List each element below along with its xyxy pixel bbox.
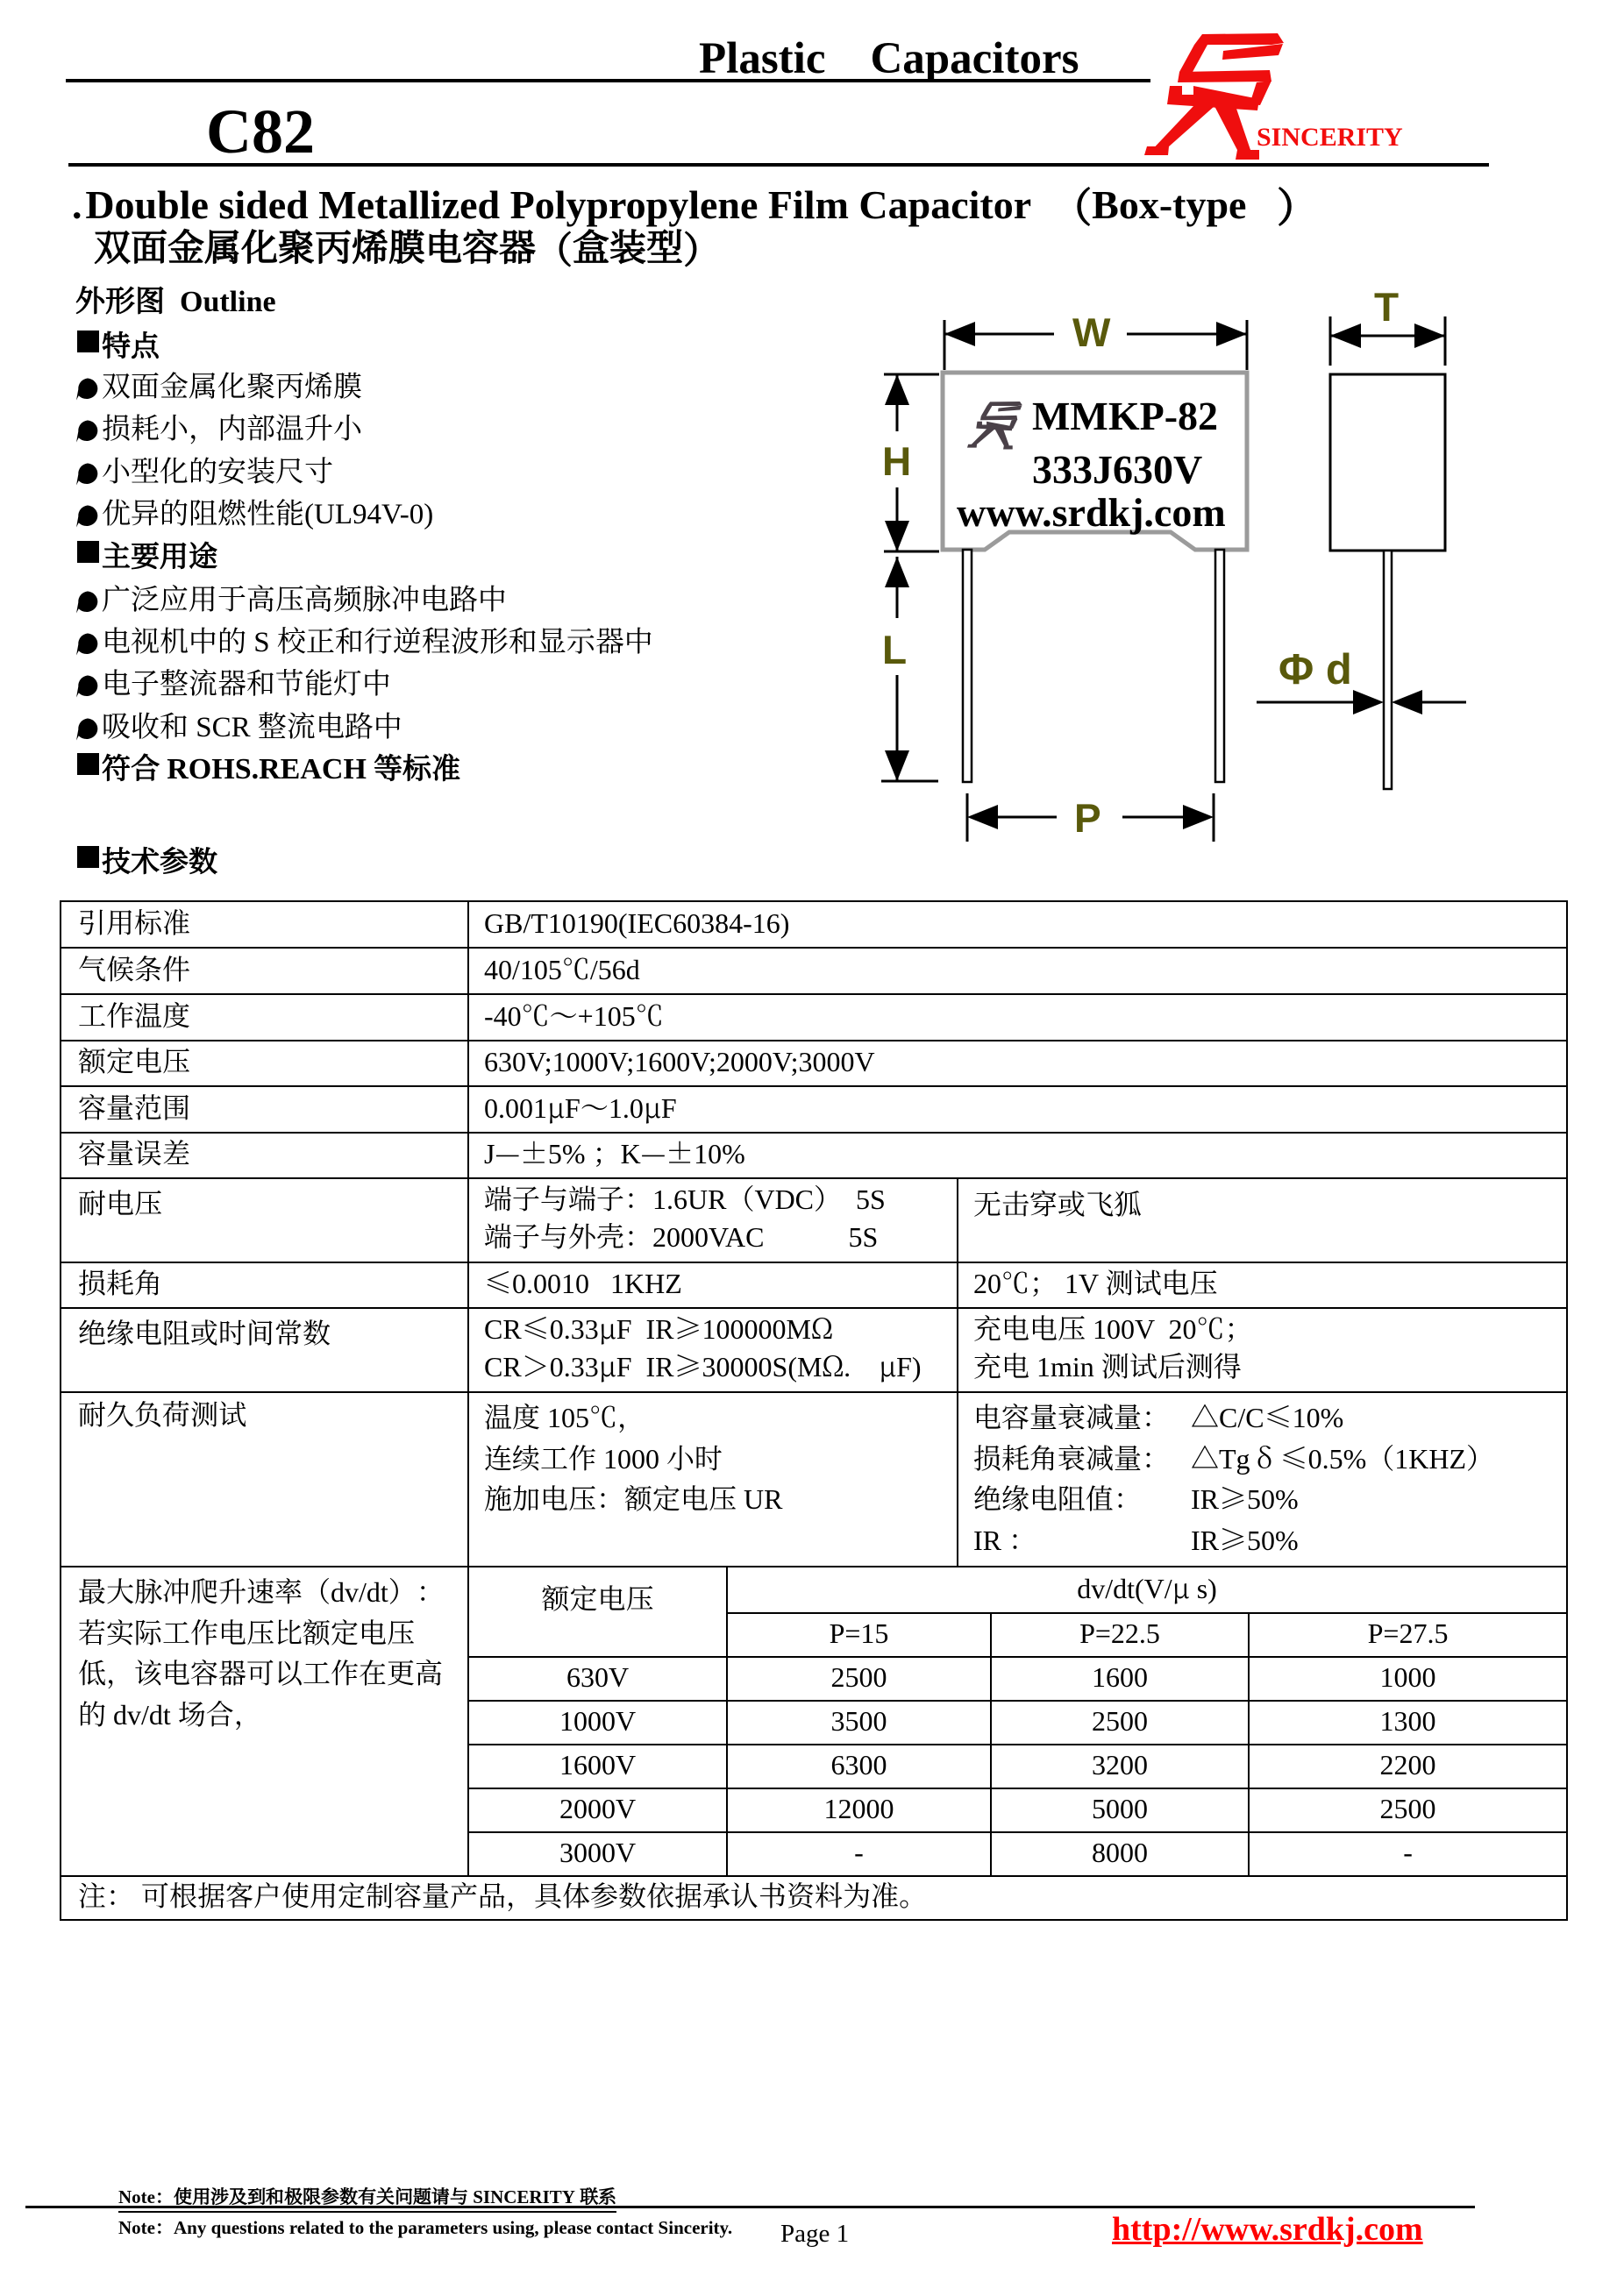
svg-text:W: W [1072, 309, 1111, 355]
svg-text:L: L [882, 627, 907, 672]
svg-text:333J630V: 333J630V [1032, 447, 1202, 492]
svg-text:H: H [882, 438, 911, 484]
svg-text:T: T [1374, 284, 1399, 330]
svg-text:P: P [1074, 795, 1101, 841]
svg-text:Φ d: Φ d [1279, 646, 1352, 693]
svg-text:MMKP-82: MMKP-82 [1032, 394, 1218, 438]
svg-text:www.srdkj.com: www.srdkj.com [957, 490, 1226, 535]
